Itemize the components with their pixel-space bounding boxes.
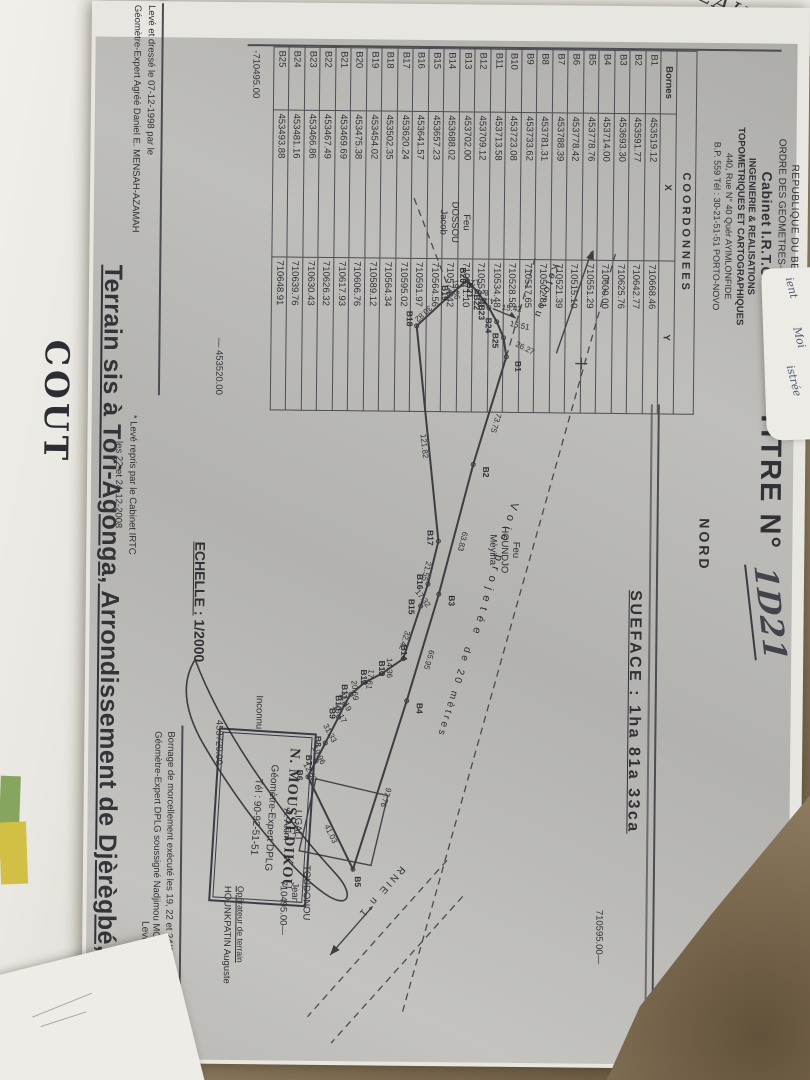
pencil-scribble-2	[41, 1011, 87, 1027]
grid-coordinate-label: 710595.00—	[593, 910, 605, 965]
road-label-voie-projetee: Voie projetée	[468, 501, 520, 641]
grid-coordinate-label: -710495.00	[250, 50, 262, 98]
scale-label: ECHELLE :	[192, 542, 209, 616]
borne-label: B15	[407, 599, 417, 615]
parcel-boundary	[307, 279, 507, 871]
borne-label: B25	[490, 333, 500, 349]
borne-label: B2	[481, 467, 491, 478]
adjoining-owner-label: HOUNDJO	[499, 526, 510, 573]
road-label-rnie: RNIE n°1	[355, 864, 407, 921]
site-plan: Voie projetée de 20 mètres RNIE n°1 Kéto…	[83, 1, 810, 1068]
edge-distance-label: 73.75	[488, 412, 503, 434]
edge-distance-label: 30.82	[413, 303, 434, 324]
photo-of-land-title-document: EAU A. COUT REPUBLIQUE DU BENIN ORDRE DE…	[0, 0, 810, 1080]
borne-label: B3	[447, 595, 457, 606]
leve-dresse-note: Levé et dressé le 07-12-1998 par le Géom…	[128, 5, 158, 233]
adjoining-owner-label: Feu	[461, 214, 472, 230]
edge-distance-label: 121.82	[419, 434, 430, 460]
scale-line: ECHELLE : 1/2000	[191, 542, 208, 663]
adjoining-owner-label: Feu	[510, 542, 521, 558]
edge-distance-label: 26.27	[514, 340, 536, 357]
handwriting-fragment-1: ient	[783, 276, 801, 300]
edge-distance-label: 97.76	[378, 787, 393, 809]
edge-distance-label: 15.51	[509, 319, 531, 332]
edge-distance-label: 65.95	[422, 649, 437, 671]
borne-label: B19	[440, 285, 450, 301]
leve-dresse-line2: Géomètre-Expert Agréé Daniel E. MENSAH-A…	[128, 5, 144, 233]
handwriting-fragment-3: istrée	[784, 364, 804, 398]
direction-label-ketonou: Kétonou	[531, 262, 561, 321]
leve-repris-line1: * Levé repris par le Cabinet IRTC	[124, 415, 139, 555]
adjoining-owner-label: Inconnu	[253, 695, 264, 729]
borne-label: B17	[425, 530, 435, 546]
survey-document-sheet: REPUBLIQUE DU BENIN ORDRE DES GEOMETRES-…	[81, 0, 810, 1069]
borne-label: B18	[405, 311, 415, 327]
background-paper-right-fragments: ient Moi istrée	[761, 267, 810, 441]
stamp-name: N. MOUSSEDIKOU	[276, 737, 303, 902]
rnie-road-edge-1	[307, 859, 447, 1018]
borne-label: B4	[415, 703, 425, 714]
green-sticky-tab	[0, 776, 21, 827]
scale-value: 1/2000	[191, 619, 207, 662]
surveyor-stamp-inner: N. MOUSSEDIKOU Géomètre-Expert DPLG Tél …	[212, 732, 312, 903]
leve-dresse-line1: Levé et dressé le 07-12-1998 par le	[142, 5, 158, 233]
surveyor-stamp: N. MOUSSEDIKOU Géomètre-Expert DPLG Tél …	[208, 727, 317, 907]
edge-distance-label: 63.83	[456, 531, 470, 553]
borne-label: B5	[353, 876, 363, 887]
pencil-scribble-1	[32, 993, 92, 1018]
handwritten-note-cout: COUT	[36, 340, 77, 465]
edge-distance-label: 41.03	[322, 823, 339, 845]
edge-distance-label: 20.69	[349, 680, 360, 701]
adjoining-owner-label: Jacob	[438, 209, 449, 234]
adjoining-owner-label: Mèyiha	[487, 534, 498, 565]
handwriting-fragment-2: Moi	[790, 326, 808, 350]
voie-projetee-dashed-edge	[401, 252, 615, 1018]
yellow-sticky-tab	[0, 822, 28, 885]
edge-distance-label: 4.34	[478, 296, 494, 305]
edge-distance-label: 21.55	[420, 560, 434, 582]
edge-distance-label: 15.42	[501, 303, 522, 314]
borne-label: B24	[484, 318, 494, 334]
rnie-road-edge-2	[331, 895, 463, 1044]
adjoining-owner-label: DOSSOU	[449, 202, 460, 243]
edge-distance-label: 32.42	[397, 630, 412, 652]
edge-distance-label: 14.36	[385, 658, 394, 679]
road-label-20-metres: de 20 mètres	[435, 646, 473, 739]
grid-coordinate-label: — 453520.00	[213, 338, 225, 395]
edge-distance-label: 8.67	[472, 288, 488, 298]
ketonou-arrow-head	[586, 250, 594, 261]
borne-label: B1	[513, 361, 523, 372]
